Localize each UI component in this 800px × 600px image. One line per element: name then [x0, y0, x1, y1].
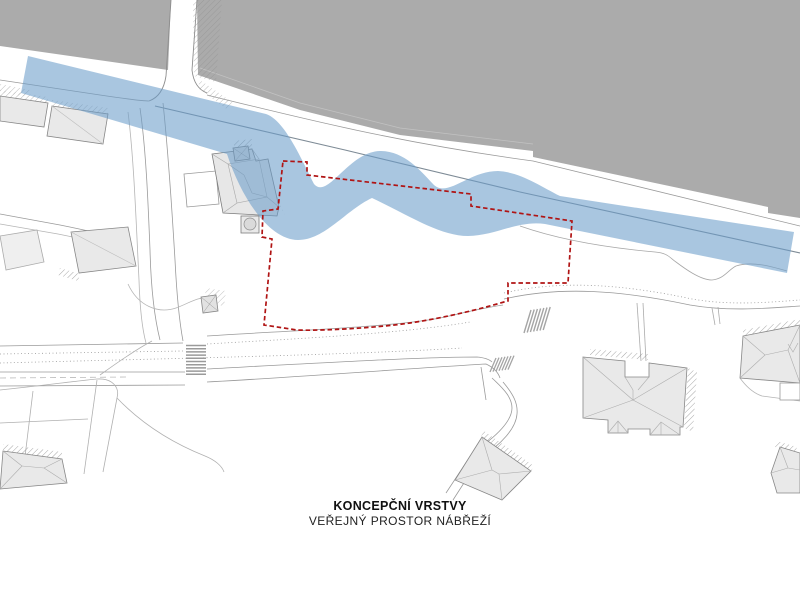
crosswalk-southeast [490, 356, 514, 372]
plan-title: KONCEPČNÍ VRSTVY [0, 499, 800, 513]
crosswalk-west [186, 346, 206, 375]
crosswalk-northeast [524, 307, 550, 333]
map-canvas: KONCEPČNÍ VRSTVY VEŘEJNÝ PROSTOR NÁBŘEŽÍ [0, 0, 800, 600]
plan-subtitle: VEŘEJNÝ PROSTOR NÁBŘEŽÍ [0, 514, 800, 528]
